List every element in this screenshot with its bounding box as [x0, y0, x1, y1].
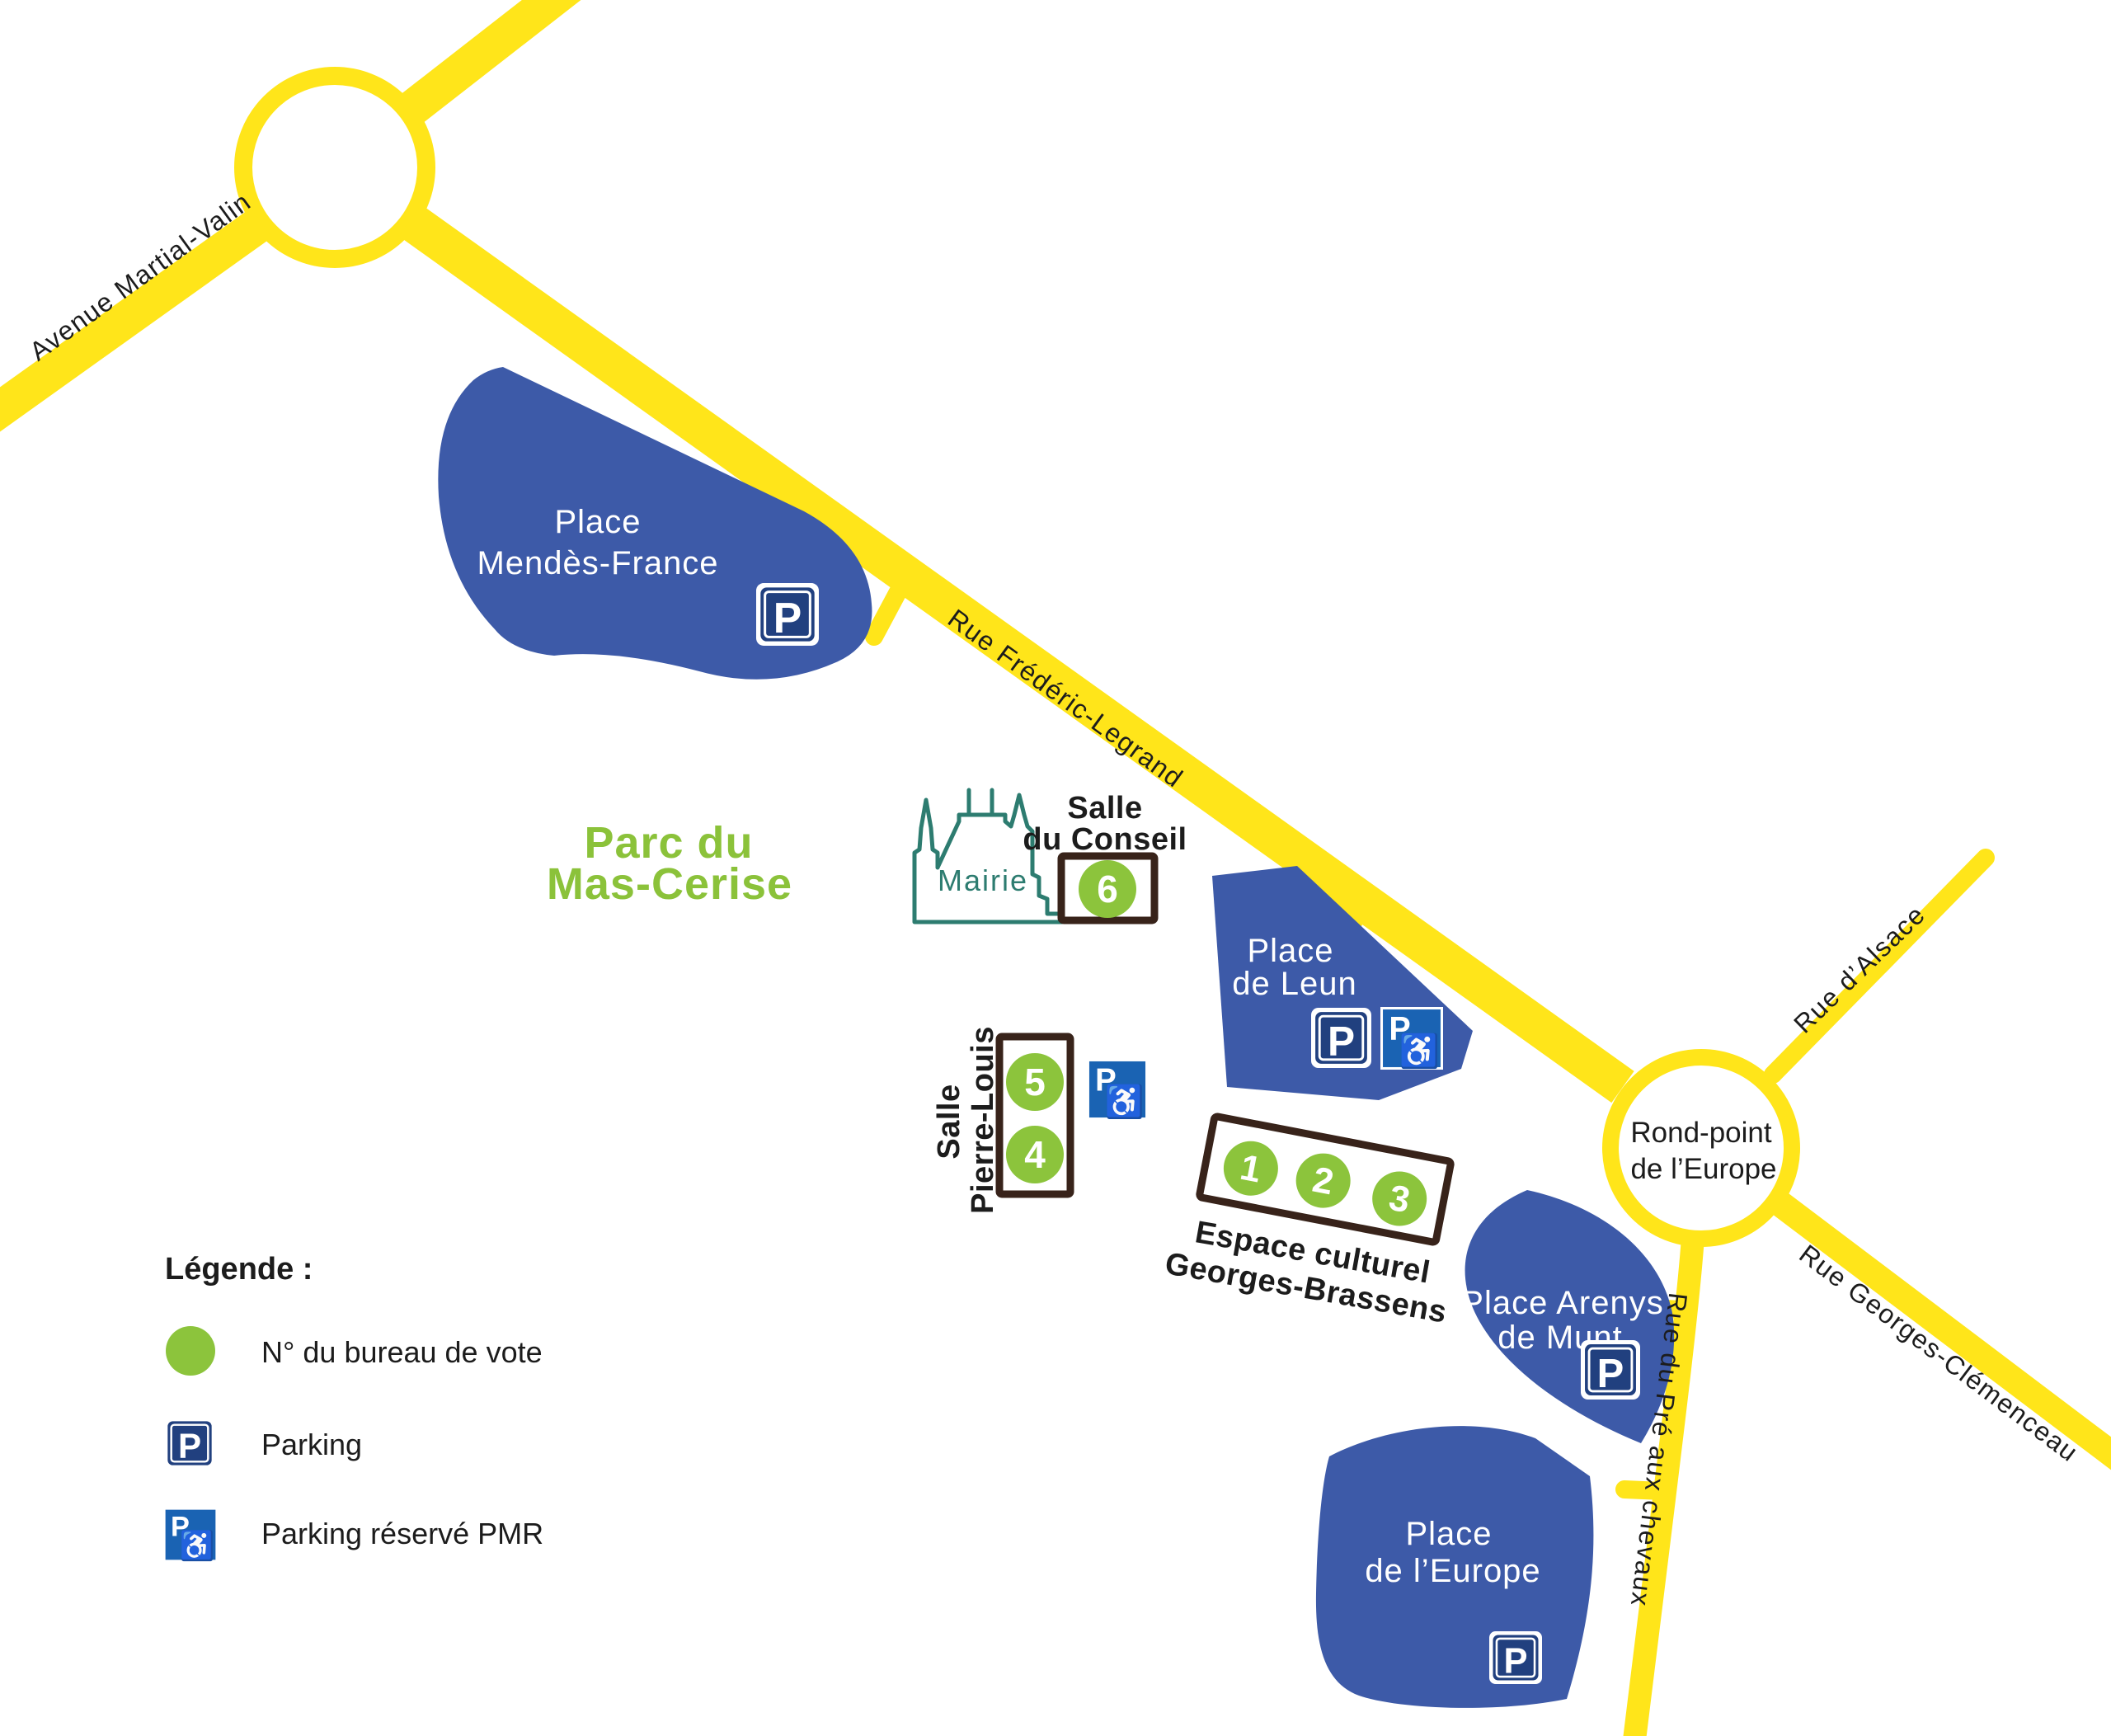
road-labels-layer: Avenue Martial-Valin Rue Frédéric-Legran…: [24, 186, 2084, 1609]
place-de-leun-label-line2: de Leun: [1232, 966, 1357, 1002]
legend-item-bureau-label: N° du bureau de vote: [261, 1335, 543, 1369]
label-rue-georges-clemenceau: Rue Georges-Clémenceau: [1794, 1239, 2084, 1468]
parking-icon: [164, 1418, 215, 1469]
site-salle-pierre-louis: Salle Pierre-Louis 5 4: [932, 1026, 1070, 1214]
salle-pierre-louis-label-line1: Salle: [932, 1084, 966, 1159]
parc-du-mas-cerise: Parc du Mas-Cerise: [547, 818, 792, 909]
label-avenue-martial-valin: Avenue Martial-Valin: [24, 186, 256, 367]
place-europe-label-line1: Place: [1405, 1516, 1492, 1552]
place-de-leun-label-line1: Place: [1247, 933, 1333, 969]
place-arenys-label-line1: Place Arenys: [1461, 1285, 1663, 1321]
pmr-parking-icon-leun: [1380, 1007, 1443, 1070]
mairie-building-posts: [969, 790, 992, 815]
salle-du-conseil-label-line1: Salle: [1067, 791, 1142, 826]
mairie-building-outline: [914, 795, 1062, 922]
salle-du-conseil-label-line2: du Conseil: [1023, 822, 1187, 857]
road-north: [407, 0, 594, 112]
mairie-label: Mairie: [938, 863, 1028, 897]
salle-pierre-louis-label-line2: Pierre-Louis: [966, 1026, 1000, 1214]
place-mendes-france-label-line1: Place: [554, 504, 641, 540]
label-rue-d-alsace: Rue d’Alsace: [1788, 899, 1931, 1038]
parc-label-line2: Mas-Cerise: [547, 859, 792, 909]
bureau-circle-icon: [166, 1326, 215, 1376]
pmr-parking-icon-pierre-louis: [1087, 1059, 1148, 1120]
bureau-5-number: 5: [1024, 1061, 1046, 1103]
label-rond-point-line1: Rond-point: [1630, 1117, 1771, 1149]
road-avenue-martial-valin: [0, 223, 261, 433]
voting-map-page: P P ♿ Place Mendès-France Place de Leun: [0, 0, 2111, 1736]
pmr-parking-icon: [163, 1508, 218, 1562]
roundabout-martial-valin: [243, 76, 426, 259]
legend-item-parking-label: Parking: [261, 1428, 362, 1461]
site-espace-culturel: 1 2 3 Espace culturel Georges-Brassens: [1163, 1116, 1451, 1329]
place-europe-label-line2: de l’Europe: [1365, 1553, 1540, 1589]
label-rue-frederic-legrand: Rue Frédéric-Legrand: [943, 603, 1189, 793]
parking-icon-mendes-france: [756, 583, 819, 646]
bureau-4-number: 4: [1024, 1133, 1046, 1176]
legend-title: Légende :: [165, 1252, 313, 1287]
parking-icon-arenys: [1581, 1340, 1640, 1400]
place-mendes-france-label-line2: Mendès-France: [477, 545, 718, 581]
map-canvas: P P ♿ Place Mendès-France Place de Leun: [0, 0, 2111, 1736]
bureau-6-number: 6: [1097, 868, 1118, 910]
roads-layer: [0, 0, 2111, 1736]
label-rond-point-line2: de l’Europe: [1630, 1153, 1776, 1185]
parking-icon-europe: [1489, 1631, 1542, 1684]
legend-item-pmr-label: Parking réservé PMR: [261, 1517, 543, 1550]
parking-icon-leun: [1311, 1008, 1371, 1068]
legend: Légende : N° du bureau de vote Parking P…: [163, 1252, 543, 1562]
